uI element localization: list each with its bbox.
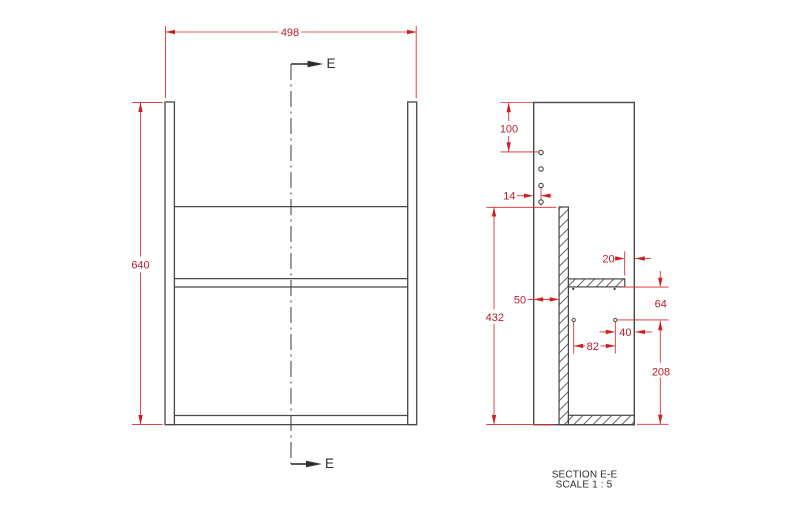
svg-text:208: 208 (652, 367, 670, 379)
svg-text:100: 100 (500, 123, 518, 135)
svg-text:64: 64 (655, 299, 667, 311)
svg-text:E: E (325, 456, 334, 471)
svg-text:82: 82 (587, 341, 599, 353)
svg-text:20: 20 (602, 254, 614, 266)
svg-text:40: 40 (619, 327, 631, 339)
svg-text:E: E (327, 56, 336, 71)
svg-text:498: 498 (281, 27, 299, 39)
svg-text:SCALE 1 : 5: SCALE 1 : 5 (556, 480, 613, 491)
svg-text:50: 50 (514, 295, 526, 307)
svg-text:14: 14 (503, 191, 515, 203)
svg-text:640: 640 (131, 260, 149, 272)
svg-text:432: 432 (486, 312, 504, 324)
